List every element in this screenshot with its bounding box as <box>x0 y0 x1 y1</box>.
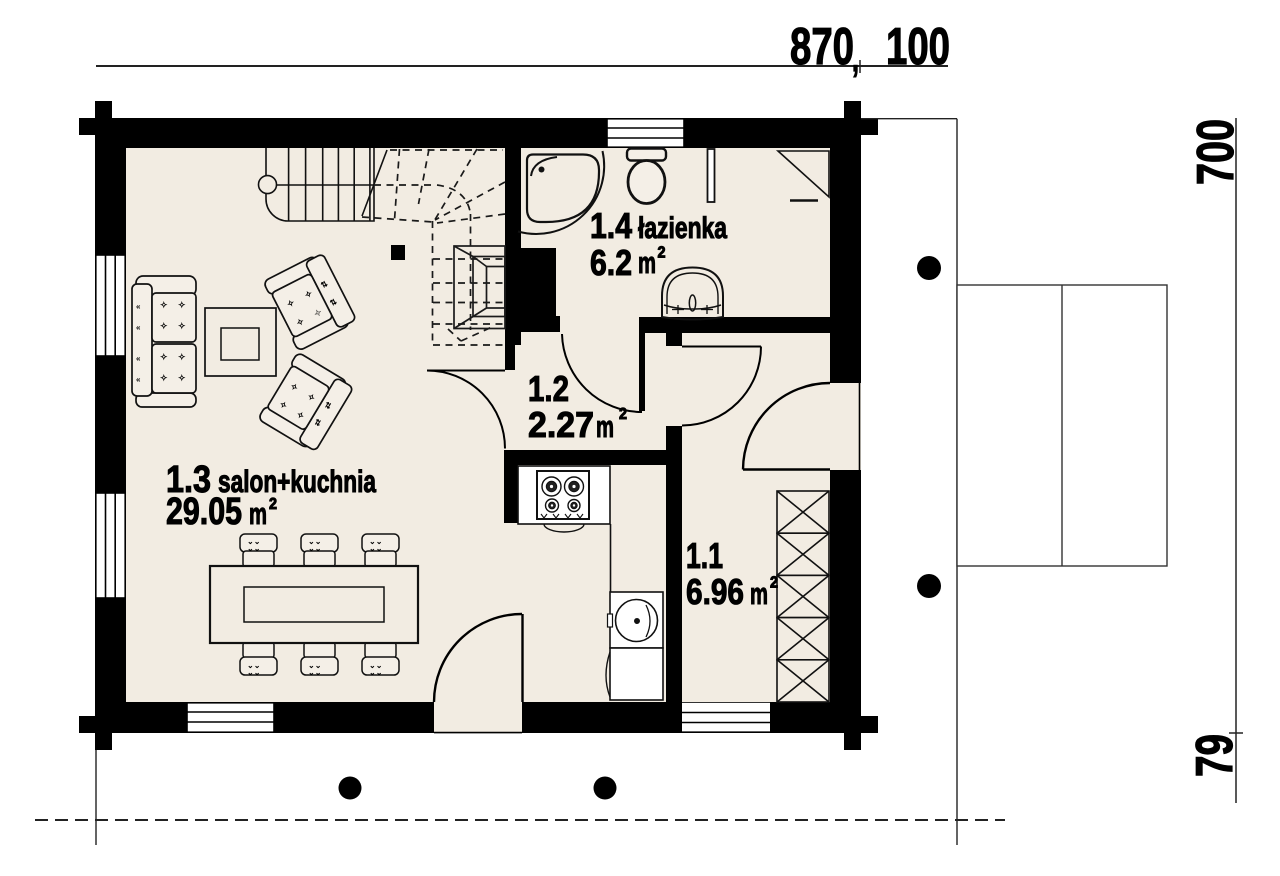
svg-text:✧: ✧ <box>178 300 186 310</box>
svg-text:6.2: 6.2 <box>590 242 632 283</box>
svg-text:m: m <box>638 247 656 280</box>
svg-text:29.05: 29.05 <box>166 491 242 533</box>
svg-text:m: m <box>750 578 768 611</box>
svg-text:⌄⌄: ⌄⌄ <box>247 544 260 553</box>
svg-text:6.96: 6.96 <box>686 571 744 612</box>
svg-text:⌄⌄: ⌄⌄ <box>369 544 382 553</box>
svg-text:2: 2 <box>658 245 666 262</box>
svg-text:«: « <box>136 302 141 311</box>
svg-text:⌄⌄: ⌄⌄ <box>369 668 382 677</box>
svg-text:✧: ✧ <box>178 373 186 383</box>
svg-text:m: m <box>249 498 267 531</box>
svg-text:,: , <box>852 38 859 80</box>
svg-text:⌄⌄: ⌄⌄ <box>247 668 260 677</box>
svg-text:✧: ✧ <box>178 321 186 331</box>
svg-text:łazienka: łazienka <box>638 212 727 245</box>
svg-text:79: 79 <box>1186 734 1244 777</box>
svg-text:✧: ✧ <box>160 373 168 383</box>
svg-text:«: « <box>136 375 141 384</box>
svg-text:1.1: 1.1 <box>686 535 723 576</box>
svg-text:1.4: 1.4 <box>590 205 632 246</box>
svg-text:✧: ✧ <box>160 352 168 362</box>
svg-text:870: 870 <box>790 18 854 76</box>
svg-text:2: 2 <box>619 406 627 423</box>
svg-text:✧: ✧ <box>160 321 168 331</box>
svg-text:2: 2 <box>269 496 277 513</box>
svg-text:2.27: 2.27 <box>528 404 594 445</box>
svg-text:m: m <box>596 411 614 444</box>
svg-text:«: « <box>136 323 141 332</box>
svg-text:✧: ✧ <box>178 352 186 362</box>
svg-text:1.2: 1.2 <box>528 368 569 409</box>
svg-text:100: 100 <box>886 18 950 76</box>
svg-text:✧: ✧ <box>160 300 168 310</box>
svg-text:2: 2 <box>770 575 778 592</box>
svg-text:⌄⌄: ⌄⌄ <box>308 668 321 677</box>
svg-text:⌄⌄: ⌄⌄ <box>308 544 321 553</box>
svg-text:700: 700 <box>1187 119 1245 185</box>
svg-text:«: « <box>136 354 141 363</box>
